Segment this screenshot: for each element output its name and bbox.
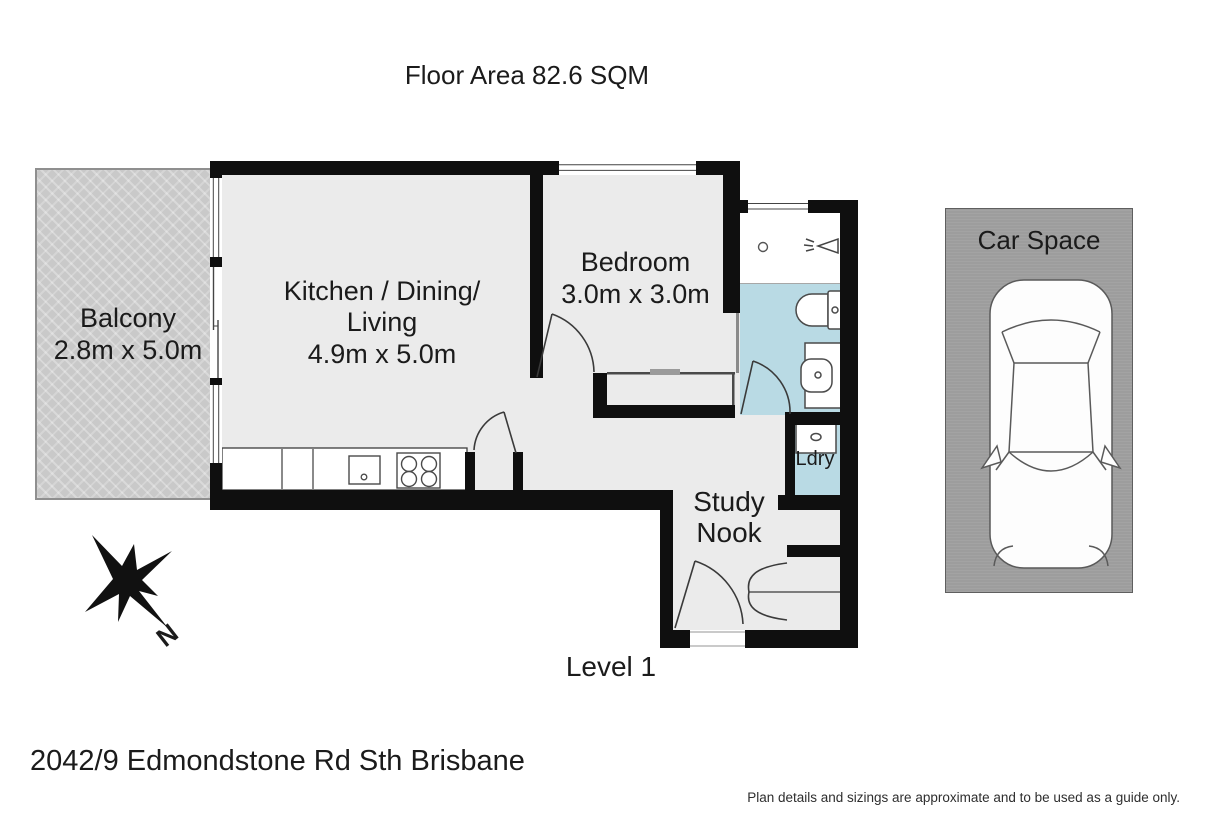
bedroom-label: Bedroom	[543, 247, 728, 278]
balcony-label: Balcony	[38, 303, 218, 334]
floor-area-title: Floor Area 82.6 SQM	[377, 61, 677, 91]
bathroom-window	[748, 200, 808, 213]
study-label-line2: Nook	[669, 517, 789, 549]
bedroom-window	[551, 161, 704, 175]
living-label-line2: Living	[252, 307, 512, 338]
north-arrow-icon	[85, 535, 172, 628]
toilet-icon	[796, 291, 842, 329]
shower-area	[740, 213, 840, 285]
vanity-icon	[801, 343, 842, 408]
living-label-line1: Kitchen / Dining/	[252, 276, 512, 307]
bedroom-bathroom-partition	[736, 313, 739, 373]
kitchen-sink-icon	[349, 456, 380, 484]
car-icon	[982, 280, 1120, 568]
floorplan-drawing	[0, 0, 1205, 832]
car-space-label: Car Space	[948, 226, 1130, 256]
living-window-upper	[210, 178, 222, 257]
cooktop-icon	[397, 453, 440, 488]
address: 2042/9 Edmondstone Rd Sth Brisbane	[30, 745, 630, 778]
kitchen-bench	[222, 448, 467, 490]
living-dims: 4.9m x 5.0m	[252, 339, 512, 370]
living-window-lower	[210, 385, 222, 463]
level-label: Level 1	[556, 651, 666, 683]
floorplan-page: Floor Area 82.6 SQM Balcony 2.8m x 5.0m …	[0, 0, 1205, 832]
balcony-dims: 2.8m x 5.0m	[38, 335, 218, 366]
laundry-label: Ldry	[790, 448, 840, 471]
bedroom-dims: 3.0m x 3.0m	[543, 279, 728, 310]
entry-threshold	[690, 630, 745, 648]
disclaimer: Plan details and sizings are approximate…	[740, 790, 1180, 805]
study-label-line1: Study	[669, 486, 789, 518]
